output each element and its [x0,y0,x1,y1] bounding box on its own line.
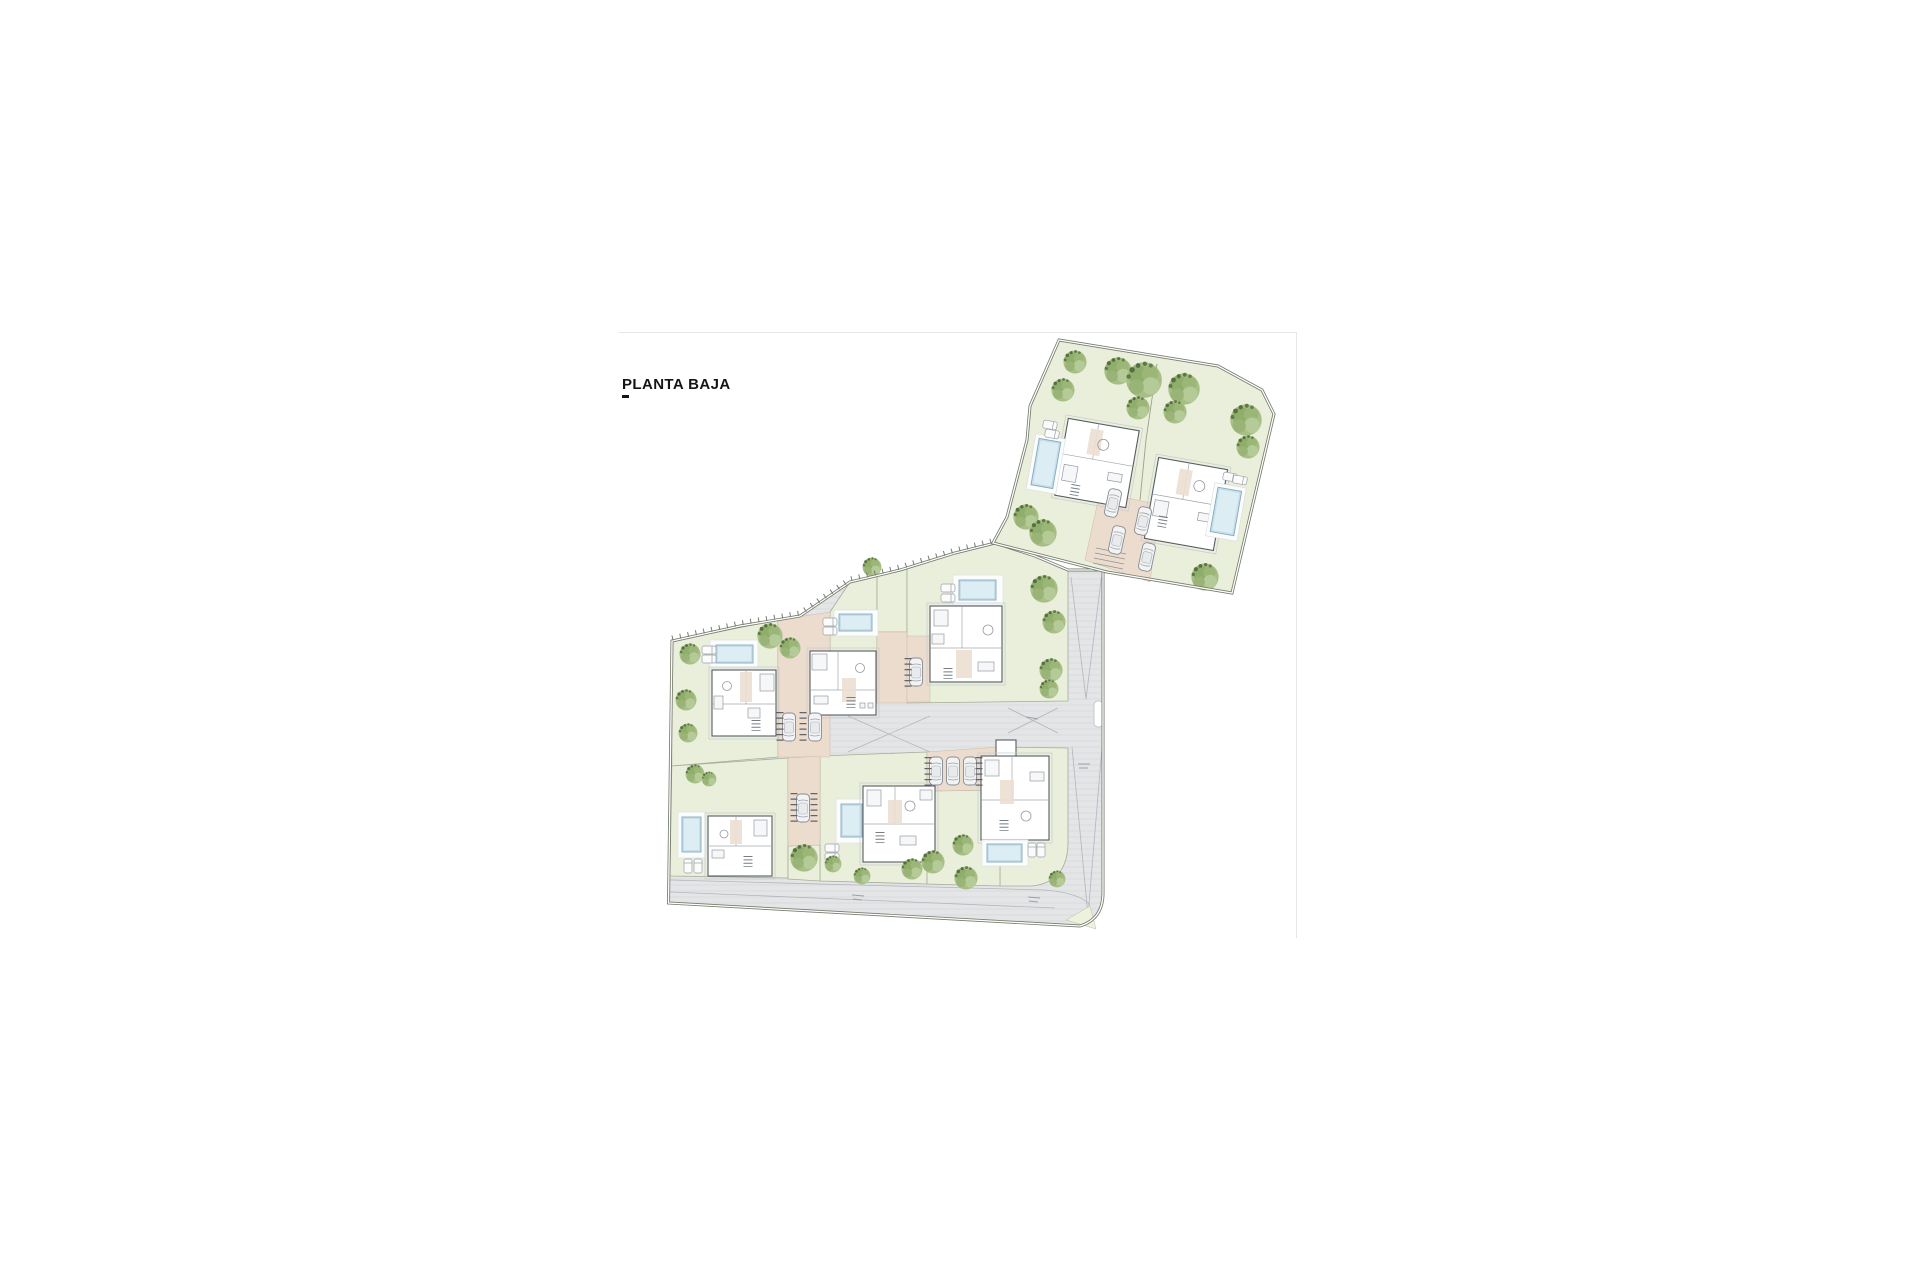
house-3 [927,603,1005,685]
lounger [825,844,839,852]
lounger [823,627,837,635]
lounger [702,646,716,654]
house-6 [978,753,1052,843]
page: PLANTA BAJA [0,0,1920,1280]
pool-5 [841,804,862,837]
parked-car [910,658,923,686]
pool-1 [716,645,753,663]
parked-car [783,713,796,741]
pool-6 [987,844,1022,862]
lounger [684,859,692,873]
parking-cars-p6 [928,757,979,787]
tree [863,557,882,576]
parked-car [930,757,943,785]
parked-car [947,757,960,785]
parked-car [809,713,822,741]
pool-4 [682,817,701,852]
upper-right-parcel [993,340,1274,593]
pool-3 [959,580,996,600]
lounger [941,584,955,592]
parked-car [964,757,977,785]
floor-plan-image [600,330,1340,990]
lounger [1037,843,1045,857]
lounger [694,859,702,873]
house-2 [807,648,879,718]
terrace-strip-p2-p3 [877,632,907,703]
plot-2-strip-green [877,568,907,632]
lounger [1028,843,1036,857]
parked-car [797,794,810,822]
house-1 [709,667,779,739]
main-cluster [669,540,1104,929]
pool-2 [839,614,872,631]
lounger [941,594,955,602]
house-4 [705,813,775,879]
lounger [823,618,837,626]
lounger [702,655,716,663]
